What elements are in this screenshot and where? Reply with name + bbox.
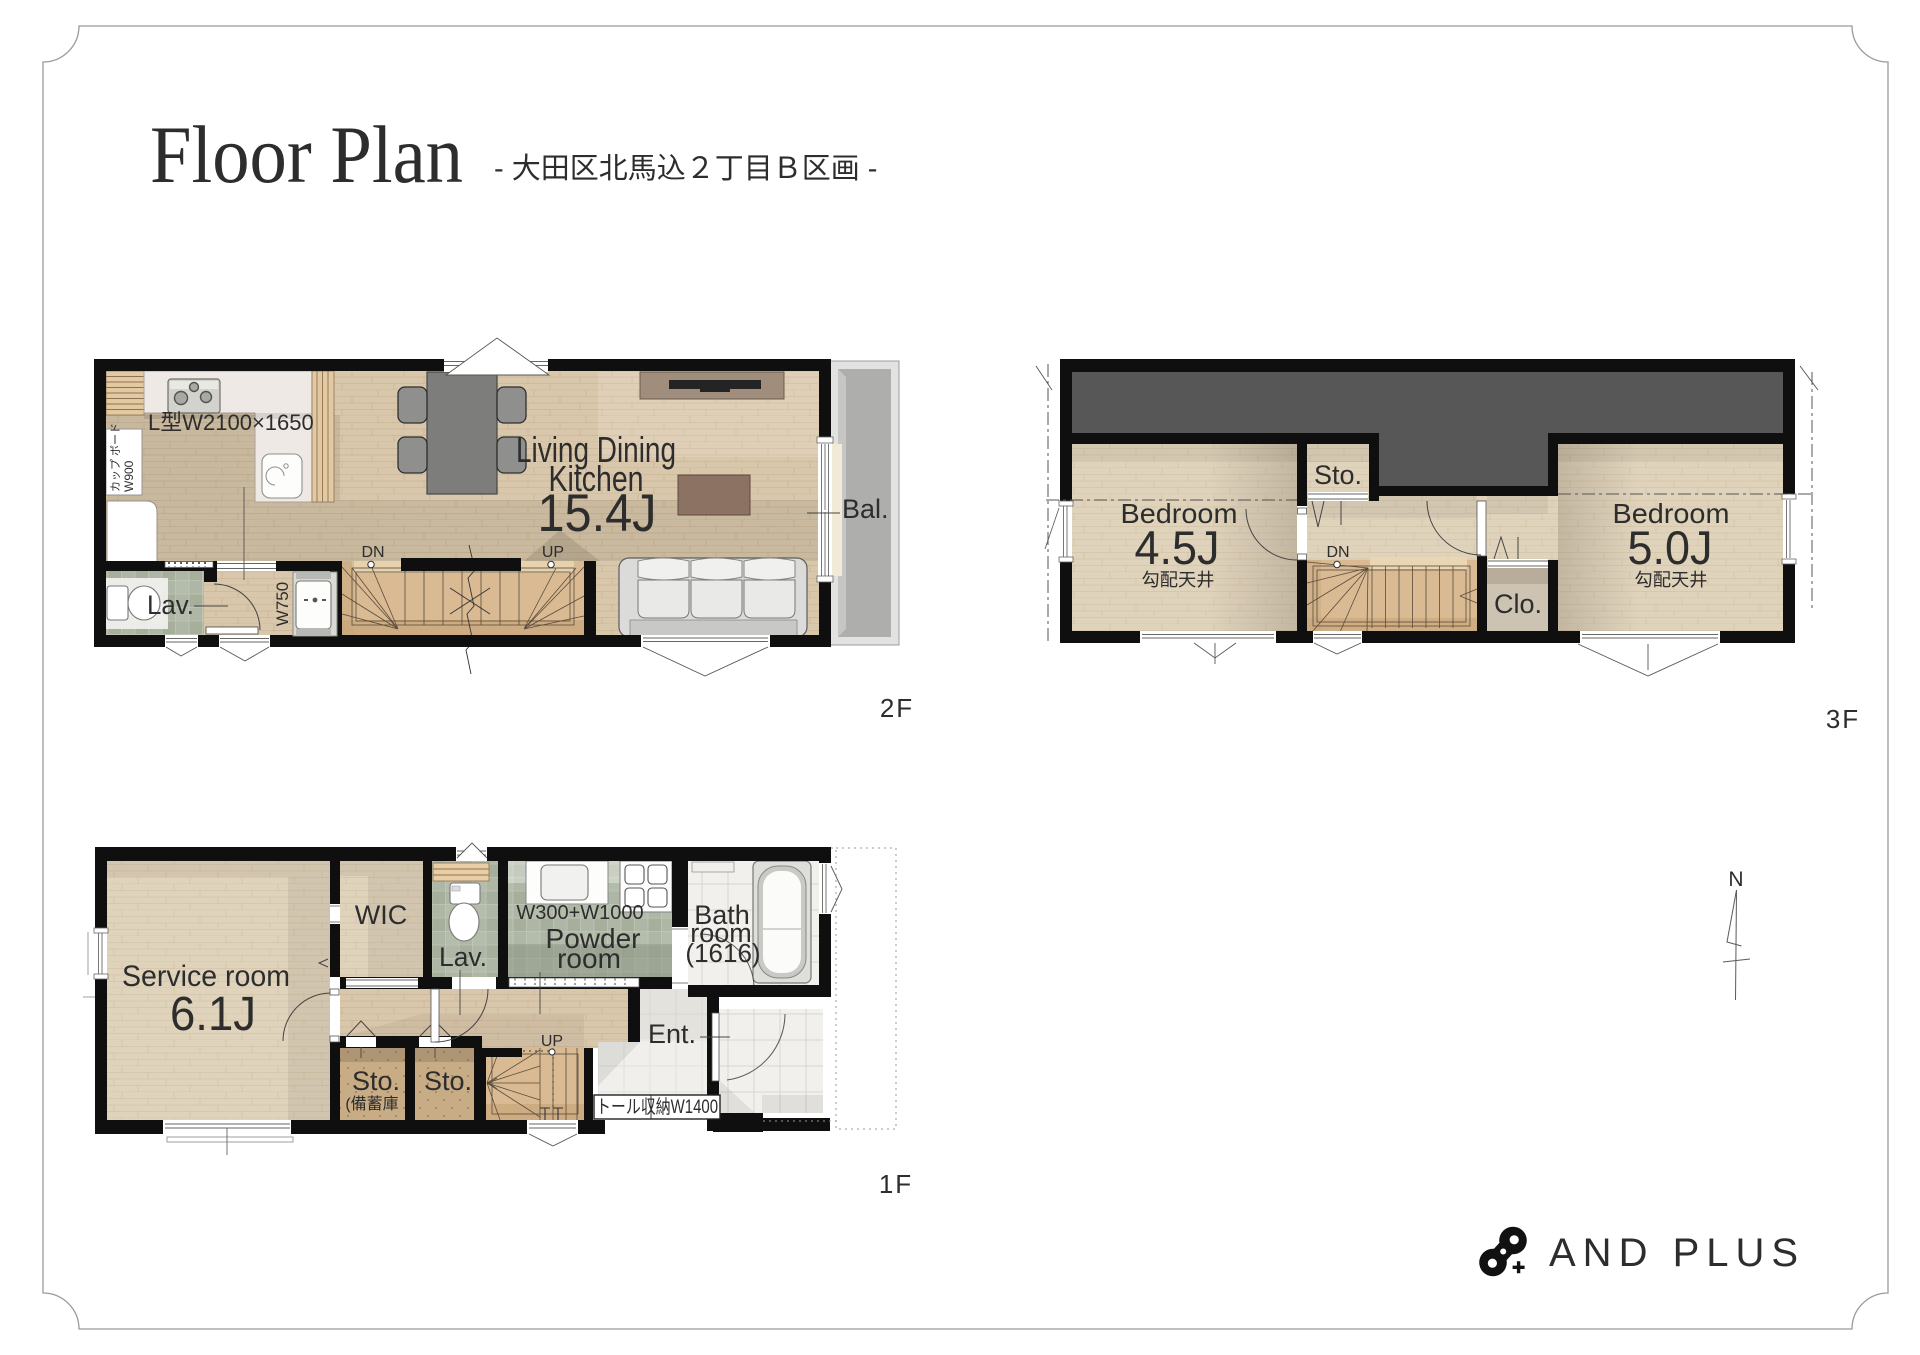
svg-text:勾配天井: 勾配天井	[1142, 570, 1215, 590]
svg-text:Lav.: Lav.	[439, 942, 487, 972]
svg-text:DN: DN	[361, 544, 384, 561]
svg-text:UP: UP	[542, 544, 564, 561]
svg-text:6.1J: 6.1J	[170, 988, 256, 1041]
svg-text:勾配天井: 勾配天井	[1635, 570, 1708, 590]
svg-text:Sto.: Sto.	[1314, 460, 1362, 490]
svg-text:(備蓄庫: (備蓄庫	[345, 1095, 398, 1113]
svg-text:UP: UP	[541, 1033, 563, 1050]
svg-text:room: room	[557, 943, 621, 974]
svg-text:4.5J: 4.5J	[1135, 521, 1220, 574]
svg-text:DN: DN	[1326, 544, 1349, 561]
svg-text:AND PLUS: AND PLUS	[1549, 1231, 1805, 1275]
svg-text:Clo.: Clo.	[1494, 589, 1542, 619]
svg-text:Sto.: Sto.	[352, 1066, 400, 1096]
svg-text:W900: W900	[122, 460, 136, 492]
svg-text:カップ ボード: カップ ボード	[109, 423, 122, 492]
svg-text:- 大田区北馬込２丁目Ｂ区画 -: - 大田区北馬込２丁目Ｂ区画 -	[494, 152, 877, 185]
svg-text:トール収納W1400: トール収納W1400	[596, 1096, 718, 1118]
svg-text:L型W2100×1650: L型W2100×1650	[148, 410, 314, 435]
svg-text:Sto.: Sto.	[424, 1066, 472, 1096]
svg-text:15.4J: 15.4J	[538, 484, 657, 543]
svg-text:Bal.: Bal.	[842, 494, 889, 524]
svg-text:W300+W1000: W300+W1000	[516, 902, 643, 924]
svg-text:5.0J: 5.0J	[1628, 521, 1713, 574]
svg-text:N: N	[1728, 868, 1743, 891]
svg-text:3F: 3F	[1826, 704, 1860, 734]
svg-text:2F: 2F	[880, 693, 914, 723]
svg-text:Lav.: Lav.	[147, 590, 194, 620]
svg-text:Floor Plan: Floor Plan	[150, 109, 463, 200]
svg-text:1F: 1F	[879, 1169, 913, 1199]
svg-text:WIC: WIC	[355, 900, 407, 930]
svg-text:W750: W750	[273, 582, 292, 626]
svg-text:Ent.: Ent.	[648, 1019, 696, 1049]
svg-text:(1616): (1616)	[685, 938, 760, 968]
